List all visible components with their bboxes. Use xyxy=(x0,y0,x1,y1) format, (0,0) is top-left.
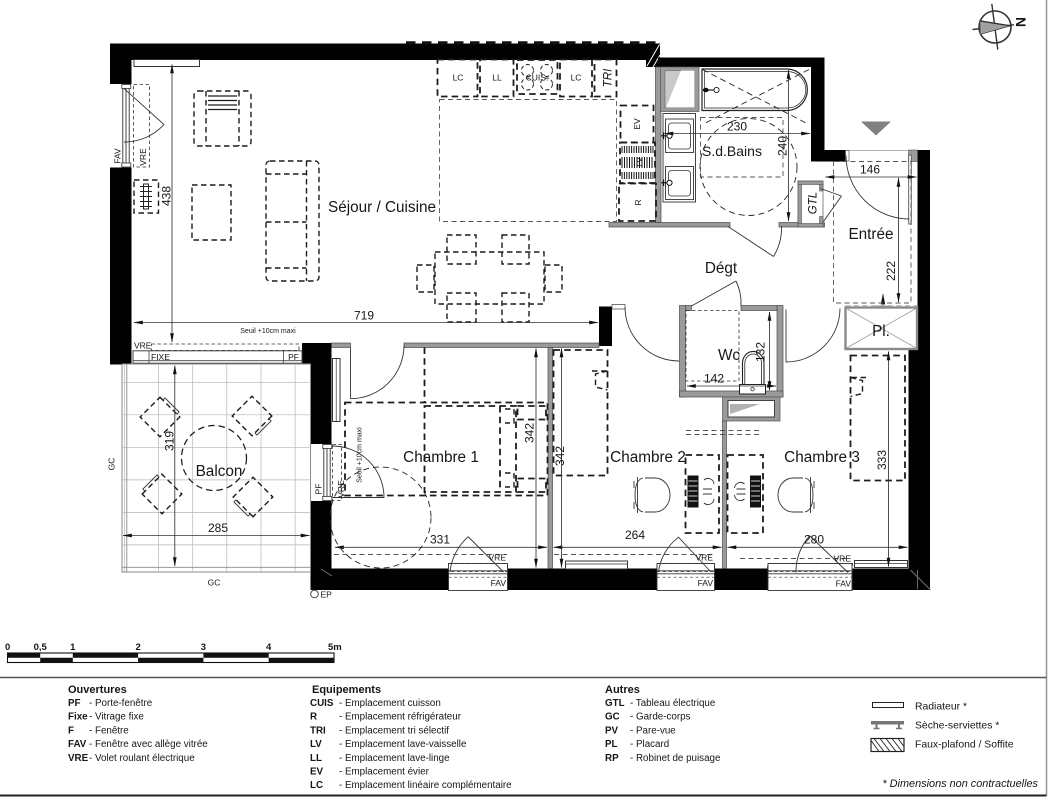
svg-text:- Fenêtre: - Fenêtre xyxy=(89,725,129,736)
svg-text:R: R xyxy=(633,199,643,205)
svg-text:EV: EV xyxy=(310,767,324,778)
svg-text:0: 0 xyxy=(5,642,10,653)
svg-text:Dégt: Dégt xyxy=(705,260,738,277)
svg-text:- Emplacement tri sélectif: - Emplacement tri sélectif xyxy=(339,725,449,736)
svg-text:TRI: TRI xyxy=(310,725,326,736)
svg-text:PF: PF xyxy=(68,698,81,709)
svg-text:LL: LL xyxy=(310,753,322,764)
svg-text:319: 319 xyxy=(163,431,177,451)
svg-text:- Emplacement linéaire complém: - Emplacement linéaire complémentaire xyxy=(339,780,512,791)
svg-text:- Robinet de puisage: - Robinet de puisage xyxy=(630,753,721,764)
svg-text:- Vitrage fixe: - Vitrage fixe xyxy=(89,712,144,723)
svg-text:S.d.Bains: S.d.Bains xyxy=(702,143,762,159)
svg-text:FAV: FAV xyxy=(113,148,123,164)
svg-text:- Emplacement réfrigérateur: - Emplacement réfrigérateur xyxy=(339,712,462,723)
svg-text:PF: PF xyxy=(288,352,299,362)
svg-text:Séjour / Cuisine: Séjour / Cuisine xyxy=(328,199,436,216)
svg-text:Chambre 3: Chambre 3 xyxy=(784,449,860,466)
svg-text:- Emplacement lave-vaisselle: - Emplacement lave-vaisselle xyxy=(339,739,467,750)
svg-text:GC: GC xyxy=(605,712,620,723)
svg-text:- Garde-corps: - Garde-corps xyxy=(630,712,691,723)
svg-text:GC: GC xyxy=(107,458,117,471)
svg-text:- Emplacement lave-linge: - Emplacement lave-linge xyxy=(339,753,450,764)
svg-text:Balcon: Balcon xyxy=(196,463,243,480)
svg-text:FIXE: FIXE xyxy=(151,352,170,362)
svg-text:VRE: VRE xyxy=(696,553,714,563)
svg-text:230: 230 xyxy=(727,120,747,134)
svg-text:- Pare-vue: - Pare-vue xyxy=(630,725,676,736)
svg-text:FAV: FAV xyxy=(698,578,714,588)
svg-text:VRE: VRE xyxy=(134,341,152,351)
svg-text:333: 333 xyxy=(875,450,889,470)
svg-text:222: 222 xyxy=(884,261,898,281)
svg-text:Radiateur *: Radiateur * xyxy=(915,702,967,713)
svg-text:FAV: FAV xyxy=(836,579,852,589)
svg-text:FAV: FAV xyxy=(491,578,507,588)
svg-text:R: R xyxy=(310,712,317,723)
svg-text:3: 3 xyxy=(201,642,206,653)
svg-text:142: 142 xyxy=(704,372,724,386)
svg-text:LL: LL xyxy=(492,73,502,83)
svg-text:280: 280 xyxy=(804,533,824,547)
svg-text:LC: LC xyxy=(571,73,582,83)
svg-text:EP: EP xyxy=(321,590,333,600)
svg-text:5m: 5m xyxy=(328,642,342,653)
svg-text:- Tableau électrique: - Tableau électrique xyxy=(630,698,716,709)
svg-text:EV: EV xyxy=(632,118,642,130)
svg-text:FAV: FAV xyxy=(68,739,87,750)
svg-text:146: 146 xyxy=(860,163,880,177)
svg-text:Entrée: Entrée xyxy=(848,226,893,243)
svg-text:VRE: VRE xyxy=(138,148,148,166)
svg-text:438: 438 xyxy=(160,186,174,206)
svg-text:VRE: VRE xyxy=(489,553,507,563)
svg-text:Ouvertures: Ouvertures xyxy=(68,684,127,696)
svg-text:240: 240 xyxy=(776,136,790,156)
svg-text:132: 132 xyxy=(754,342,768,362)
svg-text:331: 331 xyxy=(430,533,450,547)
svg-text:719: 719 xyxy=(354,309,374,323)
svg-text:LC: LC xyxy=(310,780,323,791)
svg-text:342: 342 xyxy=(523,423,537,443)
svg-text:* Dimensions non contractuelle: * Dimensions non contractuelles xyxy=(882,778,1038,790)
svg-text:CUIS.: CUIS. xyxy=(526,73,549,83)
svg-text:- Emplacement cuisson: - Emplacement cuisson xyxy=(339,698,441,709)
svg-text:Wc: Wc xyxy=(718,347,740,364)
svg-text:Chambre 1: Chambre 1 xyxy=(403,449,479,466)
svg-text:CUIS: CUIS xyxy=(310,698,334,709)
svg-text:1: 1 xyxy=(70,642,76,653)
svg-text:GTL: GTL xyxy=(808,192,820,214)
svg-text:TRI: TRI xyxy=(603,68,615,87)
svg-text:264: 264 xyxy=(625,528,645,542)
svg-text:LC: LC xyxy=(453,73,464,83)
svg-text:GC: GC xyxy=(208,578,221,588)
svg-text:2: 2 xyxy=(135,642,140,653)
svg-text:GTL: GTL xyxy=(605,698,625,709)
svg-text:VRE: VRE xyxy=(834,554,852,564)
svg-text:Seuil +10cm maxi: Seuil +10cm maxi xyxy=(240,328,296,335)
svg-text:Seuil +10cm maxi: Seuil +10cm maxi xyxy=(357,427,364,483)
svg-text:PV: PV xyxy=(605,725,619,736)
svg-text:342: 342 xyxy=(553,446,567,466)
svg-text:Chambre 2: Chambre 2 xyxy=(610,449,686,466)
svg-text:PF: PF xyxy=(314,484,324,495)
svg-text:0,5: 0,5 xyxy=(34,642,48,653)
svg-text:RP: RP xyxy=(605,753,619,764)
svg-text:285: 285 xyxy=(208,521,228,535)
svg-text:- Placard: - Placard xyxy=(630,739,669,750)
svg-text:4: 4 xyxy=(266,642,272,653)
svg-text:Sèche-serviettes *: Sèche-serviettes * xyxy=(915,721,999,732)
svg-text:N: N xyxy=(1013,17,1029,27)
svg-text:Equipements: Equipements xyxy=(312,684,381,696)
svg-text:VRE: VRE xyxy=(68,753,89,764)
svg-text:- Volet roulant électrique: - Volet roulant électrique xyxy=(89,753,195,764)
svg-text:- Emplacement évier: - Emplacement évier xyxy=(339,767,430,778)
svg-text:Pl.: Pl. xyxy=(872,323,890,340)
svg-text:- Porte-fenêtre: - Porte-fenêtre xyxy=(89,698,153,709)
svg-text:Fixe: Fixe xyxy=(68,712,88,723)
svg-text:PL: PL xyxy=(605,739,618,750)
svg-text:F: F xyxy=(68,725,74,736)
svg-text:LV: LV xyxy=(635,157,645,167)
svg-text:Autres: Autres xyxy=(605,684,640,696)
svg-text:- Fenêtre avec allège vitrée: - Fenêtre avec allège vitrée xyxy=(89,739,208,750)
svg-text:LV: LV xyxy=(310,739,322,750)
svg-text:Faux-plafond / Soffite: Faux-plafond / Soffite xyxy=(915,740,1014,751)
